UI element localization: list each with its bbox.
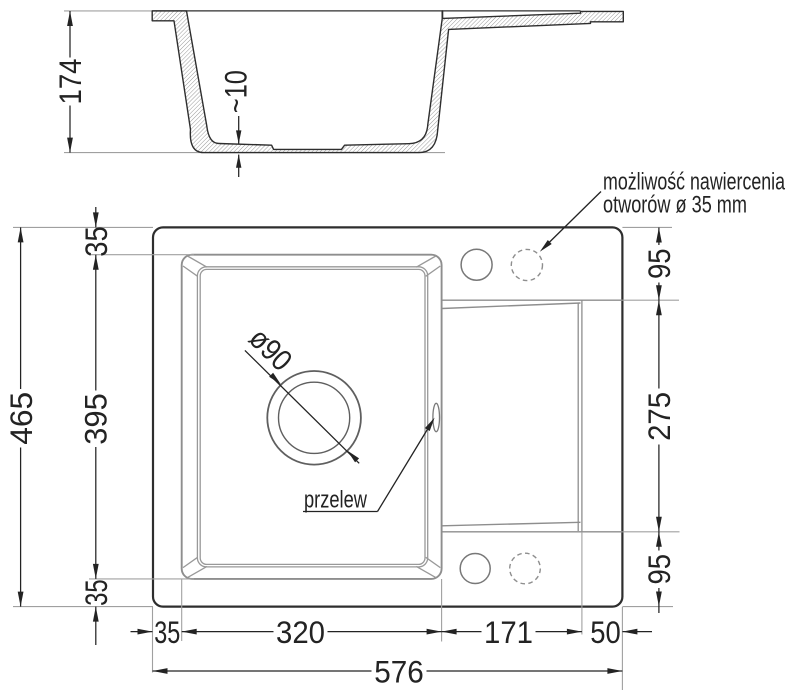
svg-text:171: 171 bbox=[484, 614, 533, 650]
svg-text:przelew: przelew bbox=[304, 487, 367, 514]
svg-text:320: 320 bbox=[276, 614, 325, 650]
svg-text:395: 395 bbox=[78, 393, 114, 445]
svg-text:otworów ø 35 mm: otworów ø 35 mm bbox=[603, 192, 747, 219]
svg-text:50: 50 bbox=[590, 614, 621, 650]
svg-text:95: 95 bbox=[641, 554, 677, 585]
svg-text:576: 576 bbox=[374, 653, 424, 689]
svg-text:95: 95 bbox=[641, 249, 677, 280]
svg-text:35: 35 bbox=[154, 614, 180, 650]
svg-text:275: 275 bbox=[641, 392, 677, 441]
svg-text:35: 35 bbox=[78, 226, 114, 257]
svg-text:35: 35 bbox=[78, 579, 114, 606]
svg-text:174: 174 bbox=[52, 59, 88, 105]
svg-text:465: 465 bbox=[3, 392, 39, 445]
svg-text:~10: ~10 bbox=[218, 70, 254, 113]
